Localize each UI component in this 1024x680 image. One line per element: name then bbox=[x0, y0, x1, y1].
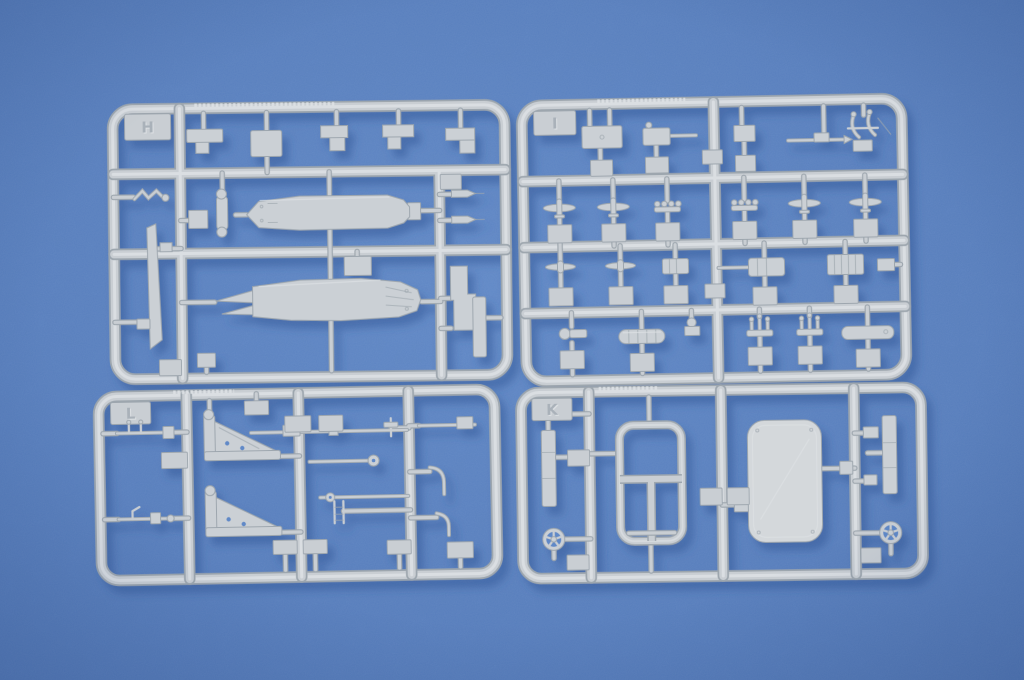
photo-canvas: H H bbox=[0, 0, 1024, 680]
vignette bbox=[0, 0, 1024, 680]
sprues-photo: H H bbox=[0, 0, 1024, 680]
